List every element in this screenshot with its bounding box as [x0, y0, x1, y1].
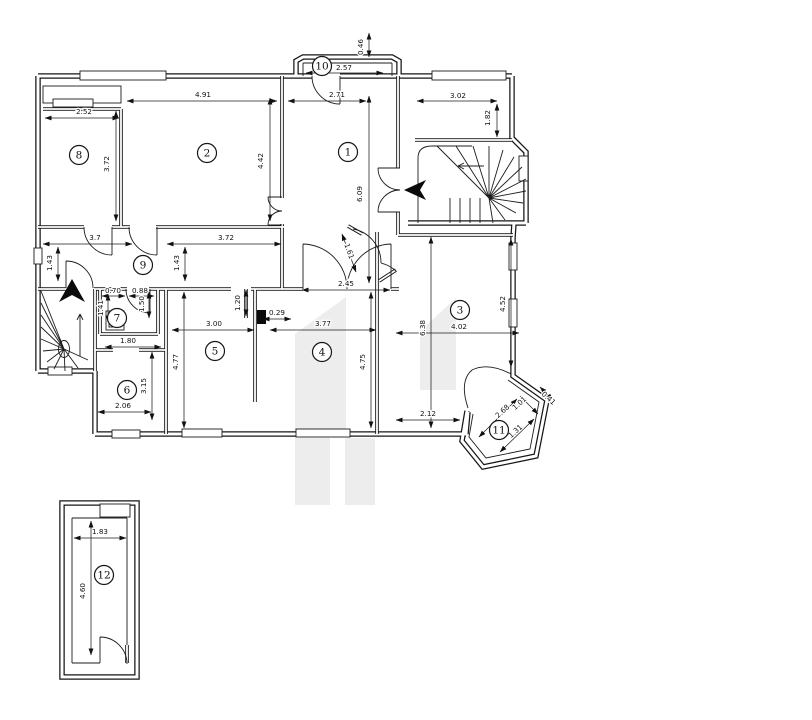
room-label-9: 9 — [134, 256, 153, 275]
column — [257, 310, 266, 324]
room-number: 11 — [492, 425, 505, 437]
room-number: 2 — [204, 148, 211, 160]
floor-plan-page: 0.462.572.713.021.824.912.523.724.426.09… — [0, 0, 812, 720]
dimension-label: 3.72 — [218, 233, 234, 242]
window — [509, 299, 517, 327]
dimension-label: 1.61 — [342, 242, 356, 260]
dimension-label: 1.20 — [233, 295, 242, 311]
room-label-1: 1 — [339, 143, 358, 162]
dimension-label: 4.42 — [256, 153, 265, 169]
dimension-label: 4.77 — [171, 354, 180, 370]
dimension-label: 1.01 — [510, 394, 528, 411]
dimension-label: 3.15 — [139, 378, 148, 394]
dimension-label: 2.45 — [338, 279, 354, 288]
dimension-label: 2.57 — [336, 63, 352, 72]
dimension-label: 3.00 — [206, 319, 222, 328]
room-number: 4 — [319, 347, 326, 359]
dimension-label: 1.80 — [120, 336, 136, 345]
dimension-label: 2.71 — [329, 90, 345, 99]
dimension-label: 0.70 — [105, 286, 121, 295]
dimension-label: 6.38 — [418, 320, 427, 336]
room-label-4: 4 — [313, 343, 332, 362]
stairs-down-arrow-icon — [404, 180, 426, 200]
room-label-7: 7 — [108, 309, 127, 328]
dimension-label: 3.77 — [315, 319, 331, 328]
dimension-label: 0.46 — [356, 39, 365, 55]
stair-direction-line — [77, 314, 83, 356]
dimension-label: 4.52 — [498, 296, 507, 312]
window — [432, 71, 506, 80]
dimension-label: 1.83 — [92, 527, 108, 536]
room-label-6: 6 — [118, 381, 137, 400]
dimension-label: 4.60 — [78, 583, 87, 599]
room-label-2: 2 — [198, 144, 217, 163]
dimension-label: 1.82 — [483, 110, 492, 126]
room-label-11: 11 — [490, 421, 509, 440]
dimension-label: 4.02 — [451, 322, 467, 331]
room-label-5: 5 — [206, 342, 225, 361]
room-number: 9 — [140, 260, 147, 272]
room-number: 3 — [457, 305, 464, 317]
dimension-label: 2.06 — [115, 401, 131, 410]
room-number: 6 — [124, 385, 131, 397]
window — [296, 429, 350, 437]
window — [53, 99, 93, 107]
room-number: 5 — [212, 346, 219, 358]
dimension-label: 1.43 — [45, 255, 54, 271]
dimension-label: 1.43 — [172, 255, 181, 271]
window — [80, 71, 166, 80]
staircase-right — [404, 146, 526, 223]
dimension-label: 3.7 — [89, 233, 100, 242]
dimension-label: 2.52 — [76, 107, 92, 116]
window — [182, 429, 222, 437]
dimension-label: 0.88 — [132, 286, 148, 295]
dimension-label: 0.29 — [269, 308, 285, 317]
window — [34, 248, 42, 264]
exterior-walls — [38, 57, 547, 677]
dimension-label: 6.09 — [355, 186, 364, 202]
dimension-label: 1.41 — [96, 300, 105, 316]
room-label-3: 3 — [451, 301, 470, 320]
window — [112, 430, 140, 438]
dimension-label: 1.50 — [137, 296, 146, 312]
staircase-left — [41, 279, 88, 371]
room-number: 1 — [345, 147, 352, 159]
dimension-label: 3.72 — [102, 156, 111, 172]
room-number: 12 — [97, 570, 110, 582]
room-number: 7 — [114, 313, 121, 325]
dimension-label: 2.12 — [420, 409, 436, 418]
window — [509, 243, 517, 270]
floor-plan-drawing: 0.462.572.713.021.824.912.523.724.426.09… — [0, 0, 812, 720]
window — [48, 367, 72, 375]
window — [100, 504, 130, 517]
room-label-8: 8 — [70, 146, 89, 165]
room-number: 8 — [76, 150, 83, 162]
dimension-label: 4.91 — [195, 90, 211, 99]
room-label-12: 12 — [95, 566, 114, 585]
dimension-label: 3.02 — [450, 91, 466, 100]
room-label-10: 10 — [313, 57, 332, 76]
dimension-label: 2.68 — [493, 402, 511, 420]
room-number: 10 — [315, 61, 328, 73]
dimension-label: 4.75 — [358, 354, 367, 370]
